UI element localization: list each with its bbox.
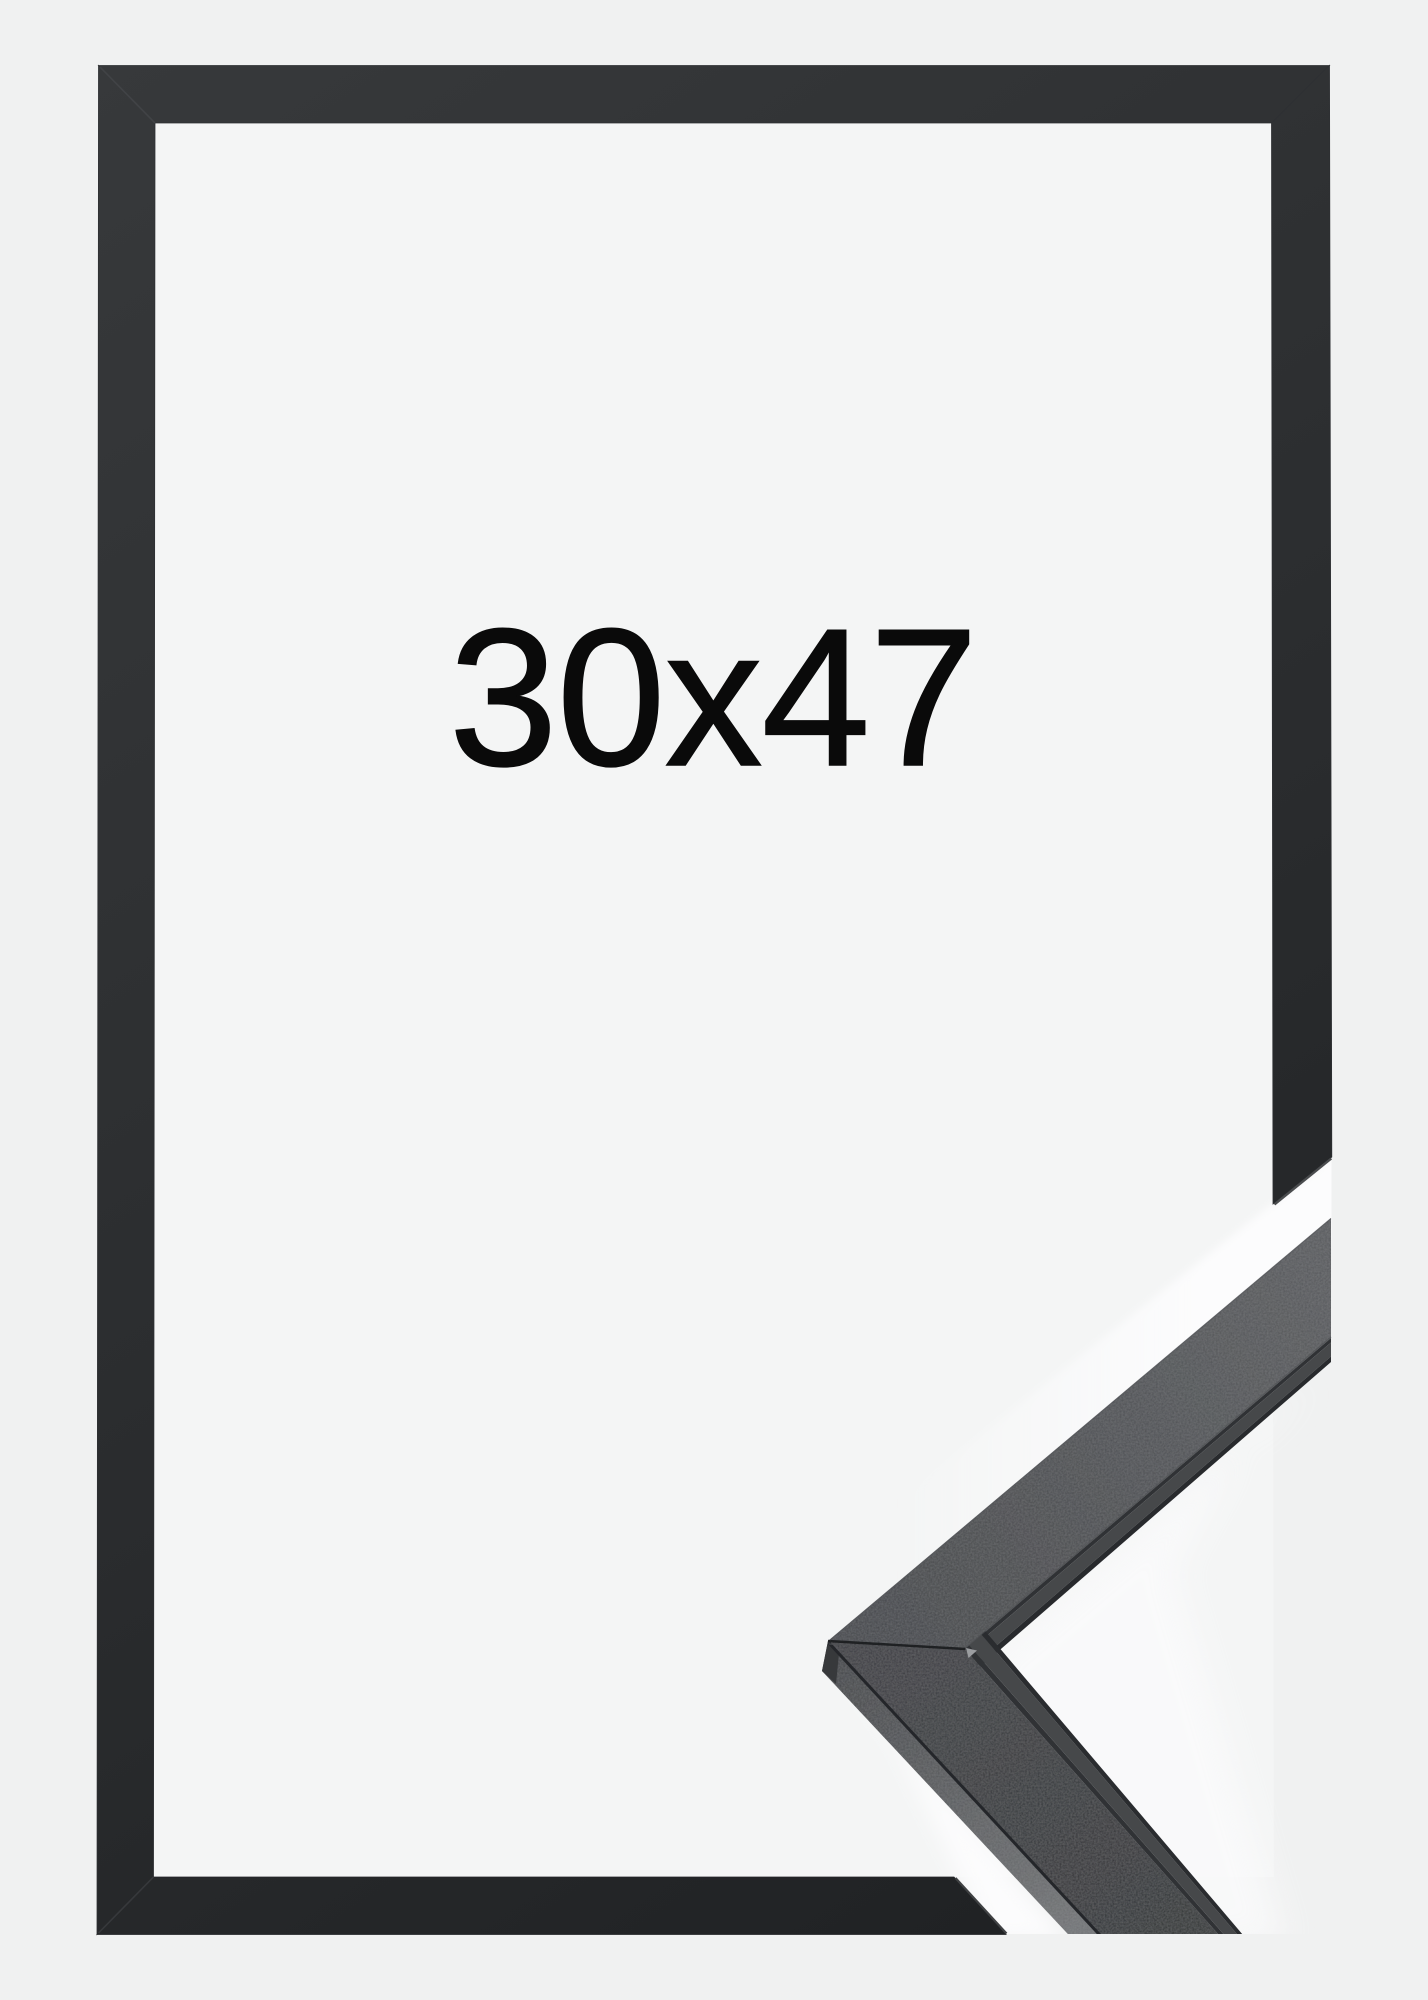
svg-text:30x47: 30x47 [449, 588, 978, 807]
